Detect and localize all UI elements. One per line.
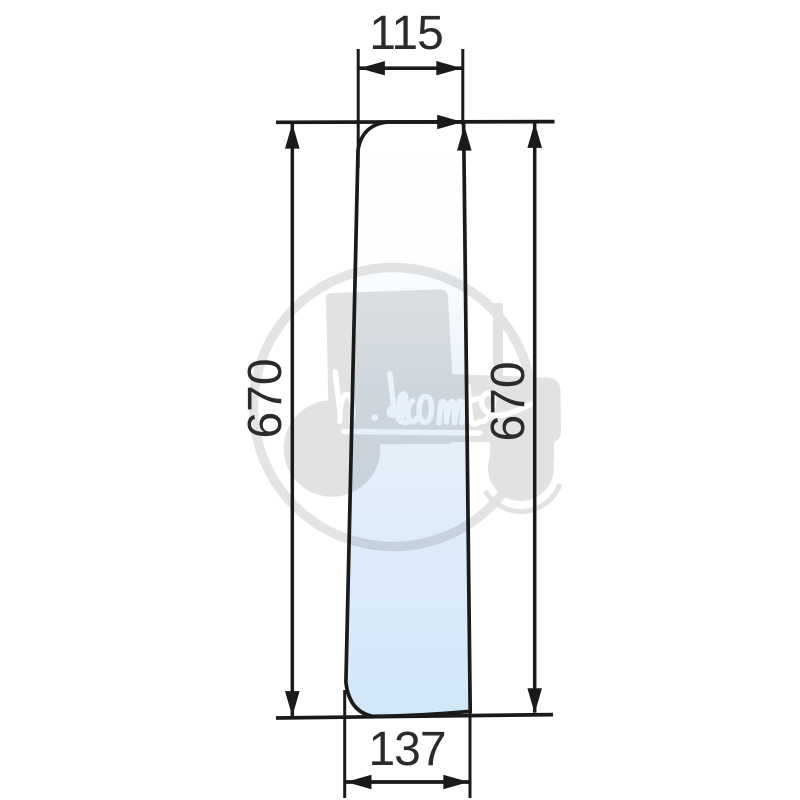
svg-text:137: 137 — [368, 723, 445, 776]
svg-text:670: 670 — [239, 358, 292, 438]
svg-text:670: 670 — [482, 361, 535, 441]
svg-text:115: 115 — [369, 7, 443, 60]
